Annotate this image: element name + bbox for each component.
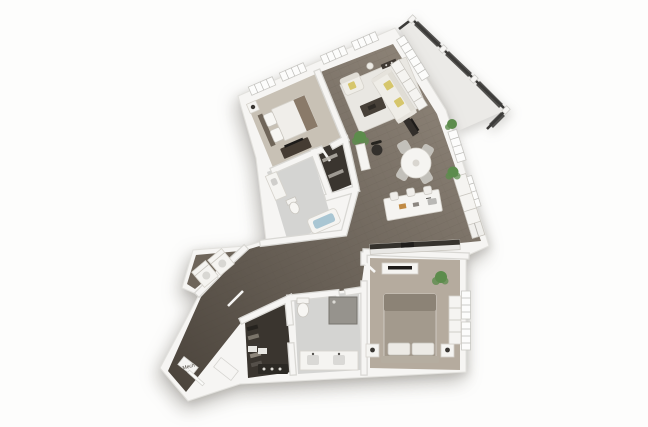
vanity-sink bbox=[307, 355, 319, 365]
floor-plan-render: Mech bbox=[0, 0, 648, 427]
nightstand-right bbox=[441, 344, 454, 357]
closet-shelf-unit bbox=[258, 364, 288, 374]
master-window-1 bbox=[462, 291, 471, 319]
floor-plan-canvas: Mech bbox=[0, 0, 648, 427]
window-seat bbox=[449, 296, 461, 344]
master-toilet bbox=[297, 298, 309, 317]
double-vanity bbox=[300, 351, 358, 370]
bar-stool bbox=[390, 192, 399, 201]
lamp bbox=[445, 348, 450, 353]
master-dresser bbox=[382, 263, 418, 274]
shower-head bbox=[332, 300, 335, 303]
bar-stool bbox=[406, 188, 415, 197]
master-pillow bbox=[412, 343, 434, 355]
master-headboard bbox=[381, 356, 439, 363]
master-pillow bbox=[388, 343, 410, 355]
master-bed bbox=[381, 294, 439, 363]
bar-stool bbox=[423, 186, 432, 195]
shower bbox=[329, 297, 357, 324]
closet-bin bbox=[258, 348, 267, 354]
table-centerpiece bbox=[413, 160, 420, 167]
vanity-sink bbox=[333, 355, 345, 365]
floor-lamp bbox=[367, 63, 373, 69]
bed-blanket bbox=[384, 294, 436, 311]
stove bbox=[401, 242, 414, 248]
master-tv bbox=[388, 266, 412, 270]
lamp bbox=[370, 348, 375, 353]
master-window-2 bbox=[462, 322, 471, 350]
closet-bin bbox=[248, 346, 257, 352]
nightstand-left bbox=[366, 344, 379, 357]
